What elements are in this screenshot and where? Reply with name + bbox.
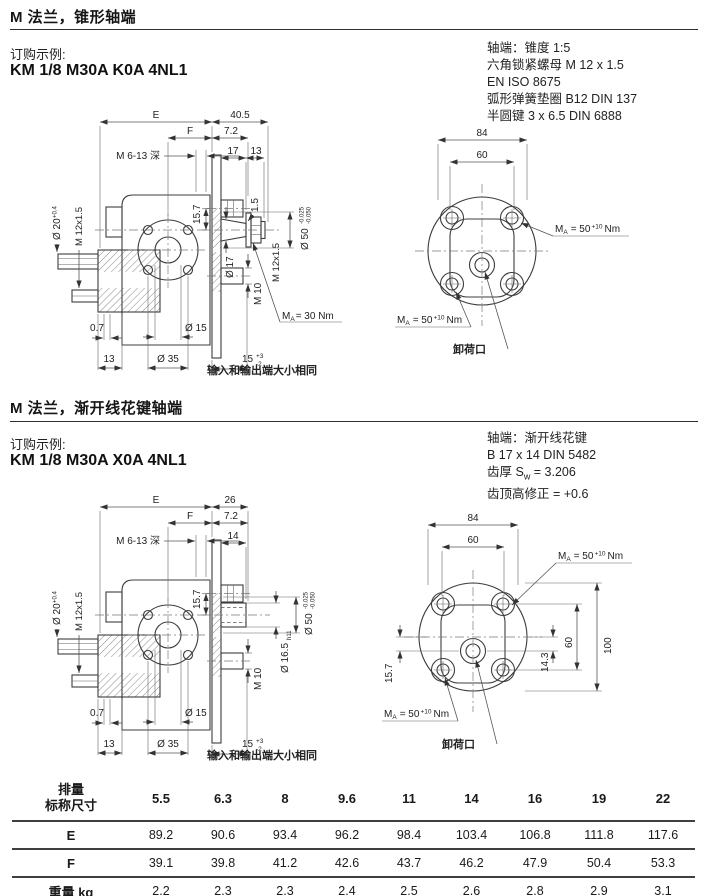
section1-order-code: KM 1/8 M30A K0A 4NL1 bbox=[10, 62, 188, 80]
table-header-row: 排量 标称尺寸 5.5 6.3 8 9.6 11 14 16 19 22 bbox=[12, 776, 695, 821]
table-cell: 53.3 bbox=[631, 849, 695, 877]
dim-84-label: 84 bbox=[476, 128, 488, 139]
table-cell: 2.5 bbox=[378, 877, 440, 896]
extension-lines bbox=[98, 511, 300, 757]
dim-dia15-label: Ø 15 bbox=[185, 323, 207, 334]
dim-60r-label: 60 bbox=[564, 636, 575, 648]
table-cell: 106.8 bbox=[503, 821, 567, 849]
dim-m6-label: M 6-13 深 bbox=[116, 150, 160, 162]
dim-72-label: 7.2 bbox=[224, 126, 238, 137]
note-line: 齿顶高修正 = +0.6 bbox=[487, 486, 596, 503]
flange-outline bbox=[404, 570, 542, 712]
dim-15tol-label: 15 bbox=[242, 354, 254, 365]
dim-13b-label: 13 bbox=[103, 354, 115, 365]
size-column-header: 19 bbox=[567, 776, 631, 821]
dim-143-label: 14.3 bbox=[540, 652, 551, 672]
table-cell: 2.3 bbox=[254, 877, 316, 896]
svg-text:h11: h11 bbox=[287, 630, 293, 640]
table-cell: 2.9 bbox=[567, 877, 631, 896]
table-row-e: E 89.2 90.6 93.4 96.2 98.4 103.4 106.8 1… bbox=[12, 821, 695, 849]
size-column-header: 8 bbox=[254, 776, 316, 821]
table-cell: 96.2 bbox=[316, 821, 378, 849]
table-cell: 98.4 bbox=[378, 821, 440, 849]
table-cell: 2.2 bbox=[130, 877, 192, 896]
svg-text:Ø 50: Ø 50 bbox=[300, 228, 311, 250]
dim-dia50-label: Ø 50 -0.025 -0.050 bbox=[300, 206, 313, 250]
table-cell: 41.2 bbox=[254, 849, 316, 877]
svg-text:-0.050: -0.050 bbox=[307, 206, 313, 224]
dim-15tol-label: 15 bbox=[242, 739, 254, 750]
dim-m12-label: M 12x1.5 bbox=[271, 243, 282, 282]
dim-13-label: 13 bbox=[250, 146, 262, 157]
dim-dia20-label: Ø 20 +0.4 bbox=[52, 590, 63, 625]
dim-e-label: E bbox=[153, 110, 160, 121]
section2-divider bbox=[10, 421, 698, 422]
dim-m12-left-label: M 12x1.5 bbox=[74, 207, 85, 246]
dim-26-label: 26 bbox=[224, 495, 236, 506]
dim-405-label: 40.5 bbox=[230, 110, 250, 121]
front-view-flange-drawing-1: 84 60 MA= 50+10Nm MA= 50+10Nm 卸荷口 bbox=[395, 120, 705, 360]
relief-port-label: 卸荷口 bbox=[442, 737, 475, 751]
size-column-header: 6.3 bbox=[192, 776, 254, 821]
dim-72-label: 7.2 bbox=[224, 511, 238, 522]
size-column-header: 11 bbox=[378, 776, 440, 821]
dim-dia35-label: Ø 35 bbox=[157, 354, 179, 365]
side-view-tapered-shaft-drawing: E 40.5 F 7.2 M 6-13 深 17 13 1.5 15.7 Ø 1… bbox=[0, 100, 400, 400]
dim-100-label: 100 bbox=[603, 637, 614, 654]
dim-m10-label: M 10 bbox=[253, 667, 264, 690]
dim-dia165-label: Ø 16.5 h11 bbox=[280, 630, 293, 673]
dimension-table: 排量 标称尺寸 5.5 6.3 8 9.6 11 14 16 19 22 E 8… bbox=[12, 776, 695, 896]
table-cell: 39.1 bbox=[130, 849, 192, 877]
table-cell: 43.7 bbox=[378, 849, 440, 877]
table-cell: 89.2 bbox=[130, 821, 192, 849]
dim-07-label: 0.7 bbox=[90, 708, 104, 719]
dim-15tol-sup: +3 bbox=[256, 738, 264, 745]
dim-f-label: F bbox=[187, 511, 193, 522]
table-cell: 2.3 bbox=[192, 877, 254, 896]
dim-60-label: 60 bbox=[467, 535, 479, 546]
svg-text:Ø 20: Ø 20 bbox=[52, 603, 63, 625]
dim-157-left-label: 15.7 bbox=[384, 663, 395, 683]
size-column-header: 16 bbox=[503, 776, 567, 821]
note-line: B 17 x 14 DIN 5482 bbox=[487, 447, 596, 464]
size-column-header: 22 bbox=[631, 776, 695, 821]
dim-m10-label: M 10 bbox=[253, 282, 264, 305]
note-line: 齿厚 Sw = 3.206 bbox=[487, 464, 596, 486]
torque-30nm-label: MA= 30 Nm bbox=[282, 311, 334, 323]
svg-text:+0.4: +0.4 bbox=[53, 205, 59, 218]
torque-50nm-label-left: MA= 50+10Nm bbox=[384, 709, 449, 722]
dim-17-label: 17 bbox=[227, 146, 239, 157]
section1-order-label: 订购示例: bbox=[10, 44, 66, 63]
size-column-header: 5.5 bbox=[130, 776, 192, 821]
same-size-note: 输入和输出端大小相同 bbox=[207, 363, 317, 377]
table-cell: 39.8 bbox=[192, 849, 254, 877]
table-row-weight: 重量 kg 2.2 2.3 2.3 2.4 2.5 2.6 2.8 2.9 3.… bbox=[12, 877, 695, 896]
table-row-f: F 39.1 39.8 41.2 42.6 43.7 46.2 47.9 50.… bbox=[12, 849, 695, 877]
dim-dia15-label: Ø 15 bbox=[185, 708, 207, 719]
section2-order-label: 订购示例: bbox=[10, 434, 66, 453]
table-cell: 111.8 bbox=[567, 821, 631, 849]
table-cell: 42.6 bbox=[316, 849, 378, 877]
dim-e-label: E bbox=[153, 495, 160, 506]
dim-15-label: 1.5 bbox=[250, 198, 261, 212]
same-size-note: 输入和输出端大小相同 bbox=[207, 748, 317, 762]
torque-50nm-label-left: MA= 50+10Nm bbox=[397, 315, 462, 328]
dim-m6-label: M 6-13 深 bbox=[116, 535, 160, 547]
svg-text:Ø 50: Ø 50 bbox=[304, 613, 315, 635]
dim-f-label: F bbox=[187, 126, 193, 137]
section2-order-code: KM 1/8 M30A X0A 4NL1 bbox=[10, 452, 187, 470]
dim-157-label: 15.7 bbox=[192, 589, 203, 609]
svg-text:-0.025: -0.025 bbox=[304, 591, 310, 609]
extension-lines bbox=[98, 126, 294, 372]
section2-shaft-notes: 轴端：渐开线花键 B 17 x 14 DIN 5482 齿厚 Sw = 3.20… bbox=[487, 430, 596, 503]
dim-dia20-label: Ø 20 +0.4 bbox=[52, 205, 63, 240]
svg-text:Ø 20: Ø 20 bbox=[52, 218, 63, 240]
table-cell: 117.6 bbox=[631, 821, 695, 849]
svg-text:+0.4: +0.4 bbox=[53, 590, 59, 603]
svg-text:Ø 16.5: Ø 16.5 bbox=[280, 643, 291, 673]
dim-60-label: 60 bbox=[476, 150, 488, 161]
dim-07-label: 0.7 bbox=[90, 323, 104, 334]
dim-157-label: 15.7 bbox=[192, 204, 203, 224]
table-cell: 2.8 bbox=[503, 877, 567, 896]
front-view-flange-drawing-2: 84 60 100 60 14.3 15.7 MA= 50+10Nm MA= 5… bbox=[380, 505, 705, 755]
section1-title: M 法兰，锥形轴端 bbox=[10, 6, 136, 27]
torque-50nm-label-right: MA= 50+10Nm bbox=[555, 224, 620, 237]
table-cell: 46.2 bbox=[440, 849, 503, 877]
datasheet-page: M 法兰，锥形轴端 订购示例: KM 1/8 M30A K0A 4NL1 轴端：… bbox=[0, 0, 705, 896]
table-cell: 2.6 bbox=[440, 877, 503, 896]
dim-m12-left-label: M 12x1.5 bbox=[74, 592, 85, 631]
relief-port-label: 卸荷口 bbox=[453, 342, 486, 356]
flange-outline bbox=[415, 184, 549, 326]
svg-text:-0.025: -0.025 bbox=[300, 206, 306, 224]
table-cell: 93.4 bbox=[254, 821, 316, 849]
note-line: EN ISO 8675 bbox=[487, 74, 637, 91]
svg-text:-0.050: -0.050 bbox=[311, 591, 317, 609]
dim-dia17-label: Ø 17 bbox=[225, 256, 236, 278]
note-line: 六角锁紧螺母 M 12 x 1.5 bbox=[487, 57, 637, 74]
table-cell: 90.6 bbox=[192, 821, 254, 849]
section2-title: M 法兰，渐开线花键轴端 bbox=[10, 397, 183, 418]
table-header-label: 排量 标称尺寸 bbox=[12, 776, 130, 821]
dim-14-label: 14 bbox=[227, 531, 239, 542]
torque-50nm-label-right: MA= 50+10Nm bbox=[558, 551, 623, 564]
dim-dia35-label: Ø 35 bbox=[157, 739, 179, 750]
table-cell: 3.1 bbox=[631, 877, 695, 896]
side-view-spline-shaft-drawing: E 26 F 7.2 M 6-13 深 14 15.7 Ø 50 -0.025 … bbox=[0, 485, 400, 785]
size-column-header: 14 bbox=[440, 776, 503, 821]
dim-13b-label: 13 bbox=[103, 739, 115, 750]
table-cell: 47.9 bbox=[503, 849, 567, 877]
note-line: 轴端：渐开线花键 bbox=[487, 430, 596, 447]
dim-dia50-label: Ø 50 -0.025 -0.050 bbox=[304, 591, 317, 635]
section1-shaft-notes: 轴端：锥度 1:5 六角锁紧螺母 M 12 x 1.5 EN ISO 8675 … bbox=[487, 40, 637, 125]
dim-84-label: 84 bbox=[467, 513, 479, 524]
note-line: 轴端：锥度 1:5 bbox=[487, 40, 637, 57]
table-cell: 50.4 bbox=[567, 849, 631, 877]
table-cell: 2.4 bbox=[316, 877, 378, 896]
table-cell: 103.4 bbox=[440, 821, 503, 849]
size-column-header: 9.6 bbox=[316, 776, 378, 821]
dim-15tol-sup: +3 bbox=[256, 353, 264, 360]
section1-divider bbox=[10, 29, 698, 30]
note-line: 弧形弹簧垫圈 B12 DIN 137 bbox=[487, 91, 637, 108]
